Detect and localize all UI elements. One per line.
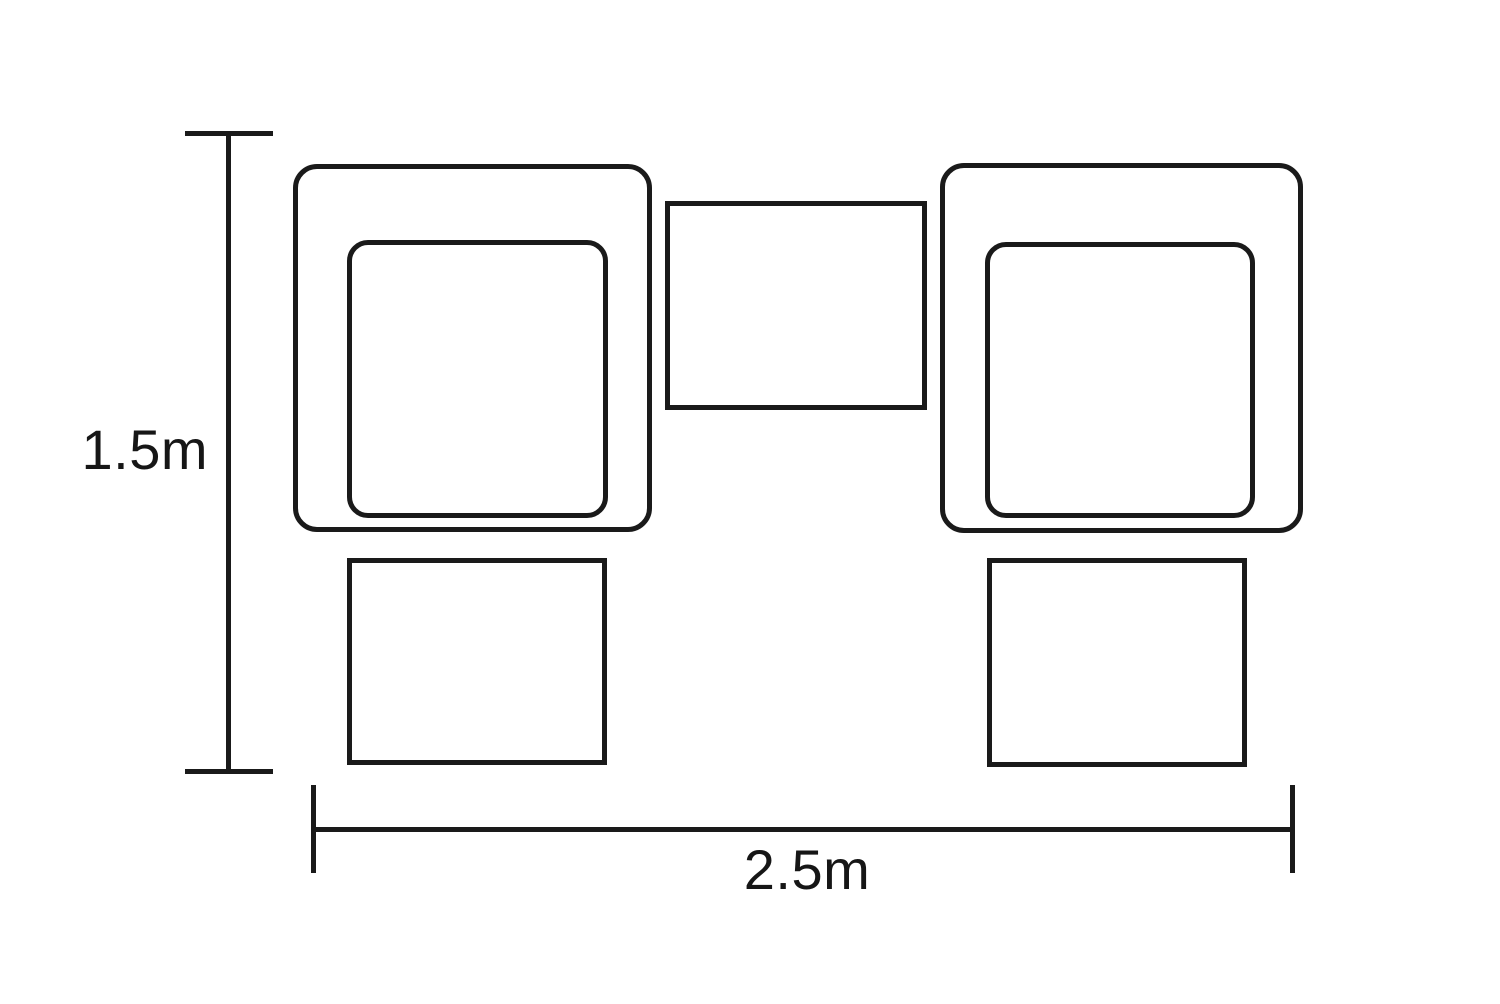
right-footstool — [987, 558, 1247, 767]
left-armchair-seat — [347, 240, 608, 518]
right-armchair-seat — [985, 242, 1255, 518]
furniture-dimension-diagram: 1.5m 2.5m — [0, 0, 1500, 1004]
height-dimension-line — [226, 134, 231, 771]
center-table — [665, 201, 927, 410]
height-dimension-cap-top — [185, 131, 273, 136]
left-footstool — [347, 558, 607, 765]
width-dimension-label: 2.5m — [707, 842, 907, 898]
width-dimension-cap-right — [1290, 785, 1295, 873]
height-dimension-label: 1.5m — [52, 422, 208, 478]
height-dimension-cap-bottom — [185, 769, 273, 774]
width-dimension-cap-left — [311, 785, 316, 873]
width-dimension-line — [313, 827, 1293, 832]
